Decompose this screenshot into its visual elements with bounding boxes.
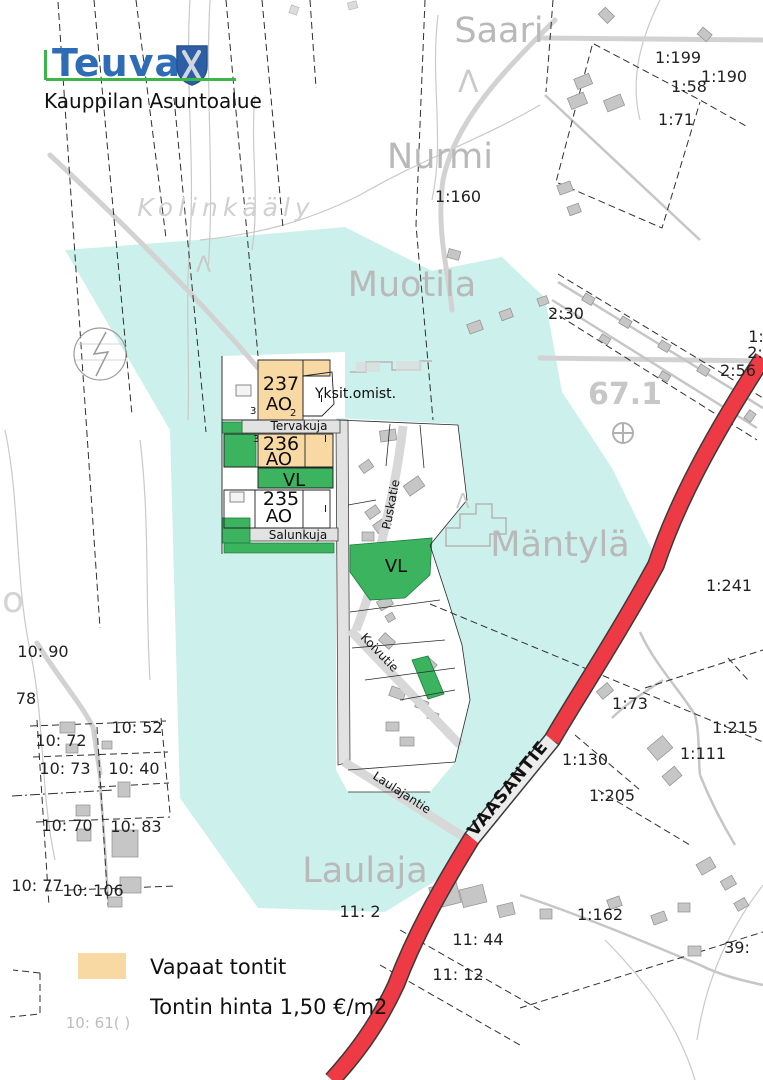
zone-ao-237: AO (266, 394, 292, 415)
parcel-10-40: 10: 40 (108, 759, 159, 778)
house-footprint (230, 492, 244, 502)
parcel-1-111: 1:111 (680, 744, 726, 763)
parcel-11-2: 11: 2 (339, 902, 380, 921)
lambda-symbol: Λ (196, 253, 211, 278)
parcel-1-71: 1:71 (658, 110, 694, 129)
marker-3: 3 (250, 406, 256, 417)
parcel-10-61-faint: 10: 61( ) (66, 1014, 130, 1032)
parcel-2-56: 2:56 (720, 361, 756, 380)
house-footprint (236, 385, 251, 396)
place-muotila: Muotila (348, 265, 476, 305)
place-mantyla: Mäntylä (490, 525, 629, 565)
legend-price-label: Tontin hinta 1,50 €/m2 (149, 995, 387, 1019)
legend-vacant-label: Vapaat tontit (150, 955, 286, 979)
logo-underline (46, 78, 236, 81)
place-laulaja: Laulaja (302, 851, 427, 891)
parcel-78: 78 (16, 689, 36, 708)
street-band-vertical (336, 420, 350, 765)
map-sheet: Saari Nurmi Kolinkääly Muotila Mäntylä L… (0, 0, 763, 1080)
parcel-2-part: 2: (747, 343, 763, 362)
parcel-1-160: 1:160 (435, 187, 481, 206)
marker-tick: I (320, 394, 323, 405)
marker-3: 3 (253, 434, 259, 445)
place-nurmi: Nurmi (387, 137, 493, 177)
parcel-1-215: 1:215 (712, 718, 758, 737)
parcel-10-106: 10: 106 (62, 881, 123, 900)
map-svg: Saari Nurmi Kolinkääly Muotila Mäntylä L… (0, 0, 763, 1080)
zone-vl-park: VL (385, 556, 407, 577)
parcel-1-241: 1:241 (706, 576, 752, 595)
parcel-10-90: 10: 90 (17, 642, 68, 661)
parcel-10-77: 10: 77 (11, 876, 62, 895)
parcel-1-73: 1:73 (612, 694, 648, 713)
zone-ao-235: AO (266, 506, 292, 527)
marker-2: 2 (290, 408, 296, 419)
parcel-1-190: 1:190 (701, 67, 747, 86)
parcel-2-30: 2:30 (548, 304, 584, 323)
lambda-symbol: Λ (456, 489, 470, 513)
zone-ao-236: AO (266, 449, 292, 470)
block-number-67-1: 67.1 (588, 377, 662, 412)
street-salunkuja: Salunkuja (269, 528, 327, 542)
marker-tick: I (324, 504, 327, 515)
parcel-10-70: 10: 70 (41, 816, 92, 835)
parcel-1-199: 1:199 (655, 48, 701, 67)
page-title: Kauppilan Asuntoalue (44, 89, 262, 113)
street-tervakuja: Tervakuja (270, 419, 328, 433)
place-kolinkaaly: Kolinkääly (137, 193, 314, 222)
marker-tick: I (324, 434, 327, 445)
survey-point-icon (613, 423, 633, 443)
parcel-11-44: 11: 44 (452, 930, 503, 949)
lambda-symbol: Λ (458, 65, 479, 100)
parcel-10-52: 10: 52 (111, 718, 162, 737)
legend-vacant-swatch (78, 953, 126, 979)
parcel-11-12: 11: 12 (432, 965, 483, 984)
parcel-1-205: 1:205 (589, 786, 635, 805)
place-saari: Saari (454, 11, 543, 51)
parcel-1-162: 1:162 (577, 905, 623, 924)
stray-letter-o: o (2, 580, 24, 621)
plot-237: 237 (263, 373, 299, 395)
parcel-10-72: 10: 72 (35, 731, 86, 750)
parcel-10-83: 10: 83 (110, 817, 161, 836)
label-yksit-omist: Yksit.omist. (314, 386, 396, 402)
logo-green-bracket (44, 50, 47, 80)
parcel-1-130: 1:130 (562, 750, 608, 769)
parcel-10-73: 10: 73 (39, 759, 90, 778)
parcel-39: 39: (724, 938, 750, 957)
